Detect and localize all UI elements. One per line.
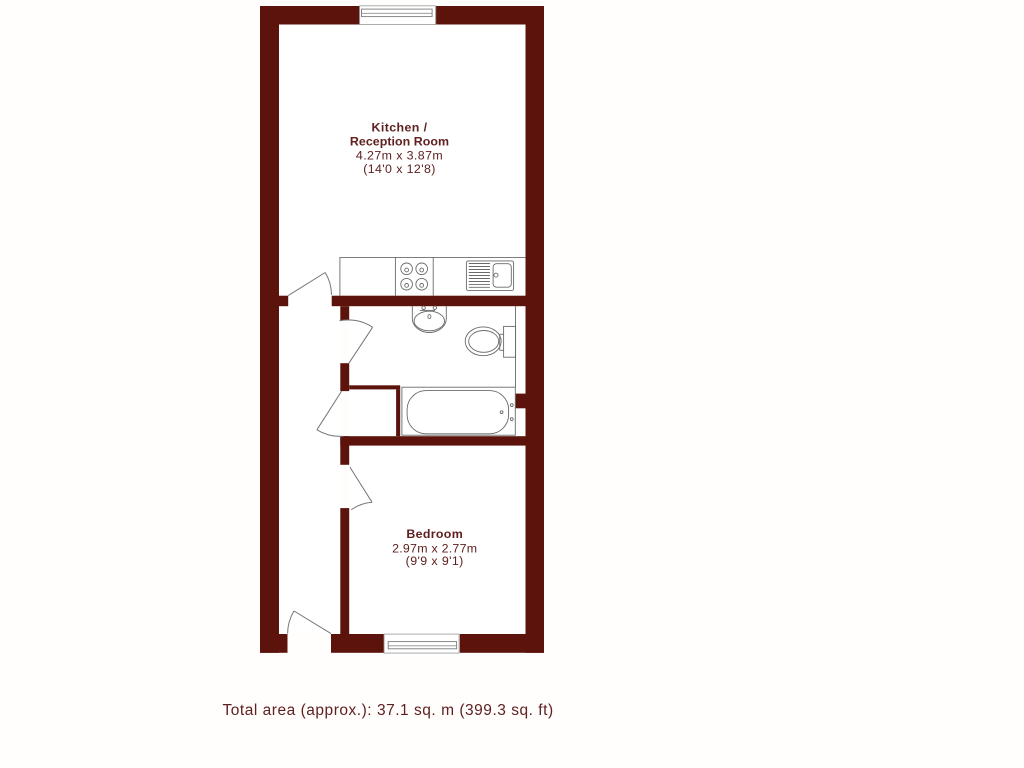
svg-text:Reception Room: Reception Room bbox=[350, 135, 449, 149]
svg-text:4.27m x 3.87m: 4.27m x 3.87m bbox=[356, 149, 443, 163]
svg-text:Total area (approx.): 37.1 sq.: Total area (approx.): 37.1 sq. m (399.3 … bbox=[223, 702, 554, 719]
svg-text:Kitchen /: Kitchen / bbox=[372, 121, 428, 135]
svg-text:(14'0 x 12'8): (14'0 x 12'8) bbox=[363, 162, 436, 176]
svg-text:Bedroom: Bedroom bbox=[406, 527, 463, 541]
svg-text:(9'9 x 9'1): (9'9 x 9'1) bbox=[406, 554, 464, 568]
